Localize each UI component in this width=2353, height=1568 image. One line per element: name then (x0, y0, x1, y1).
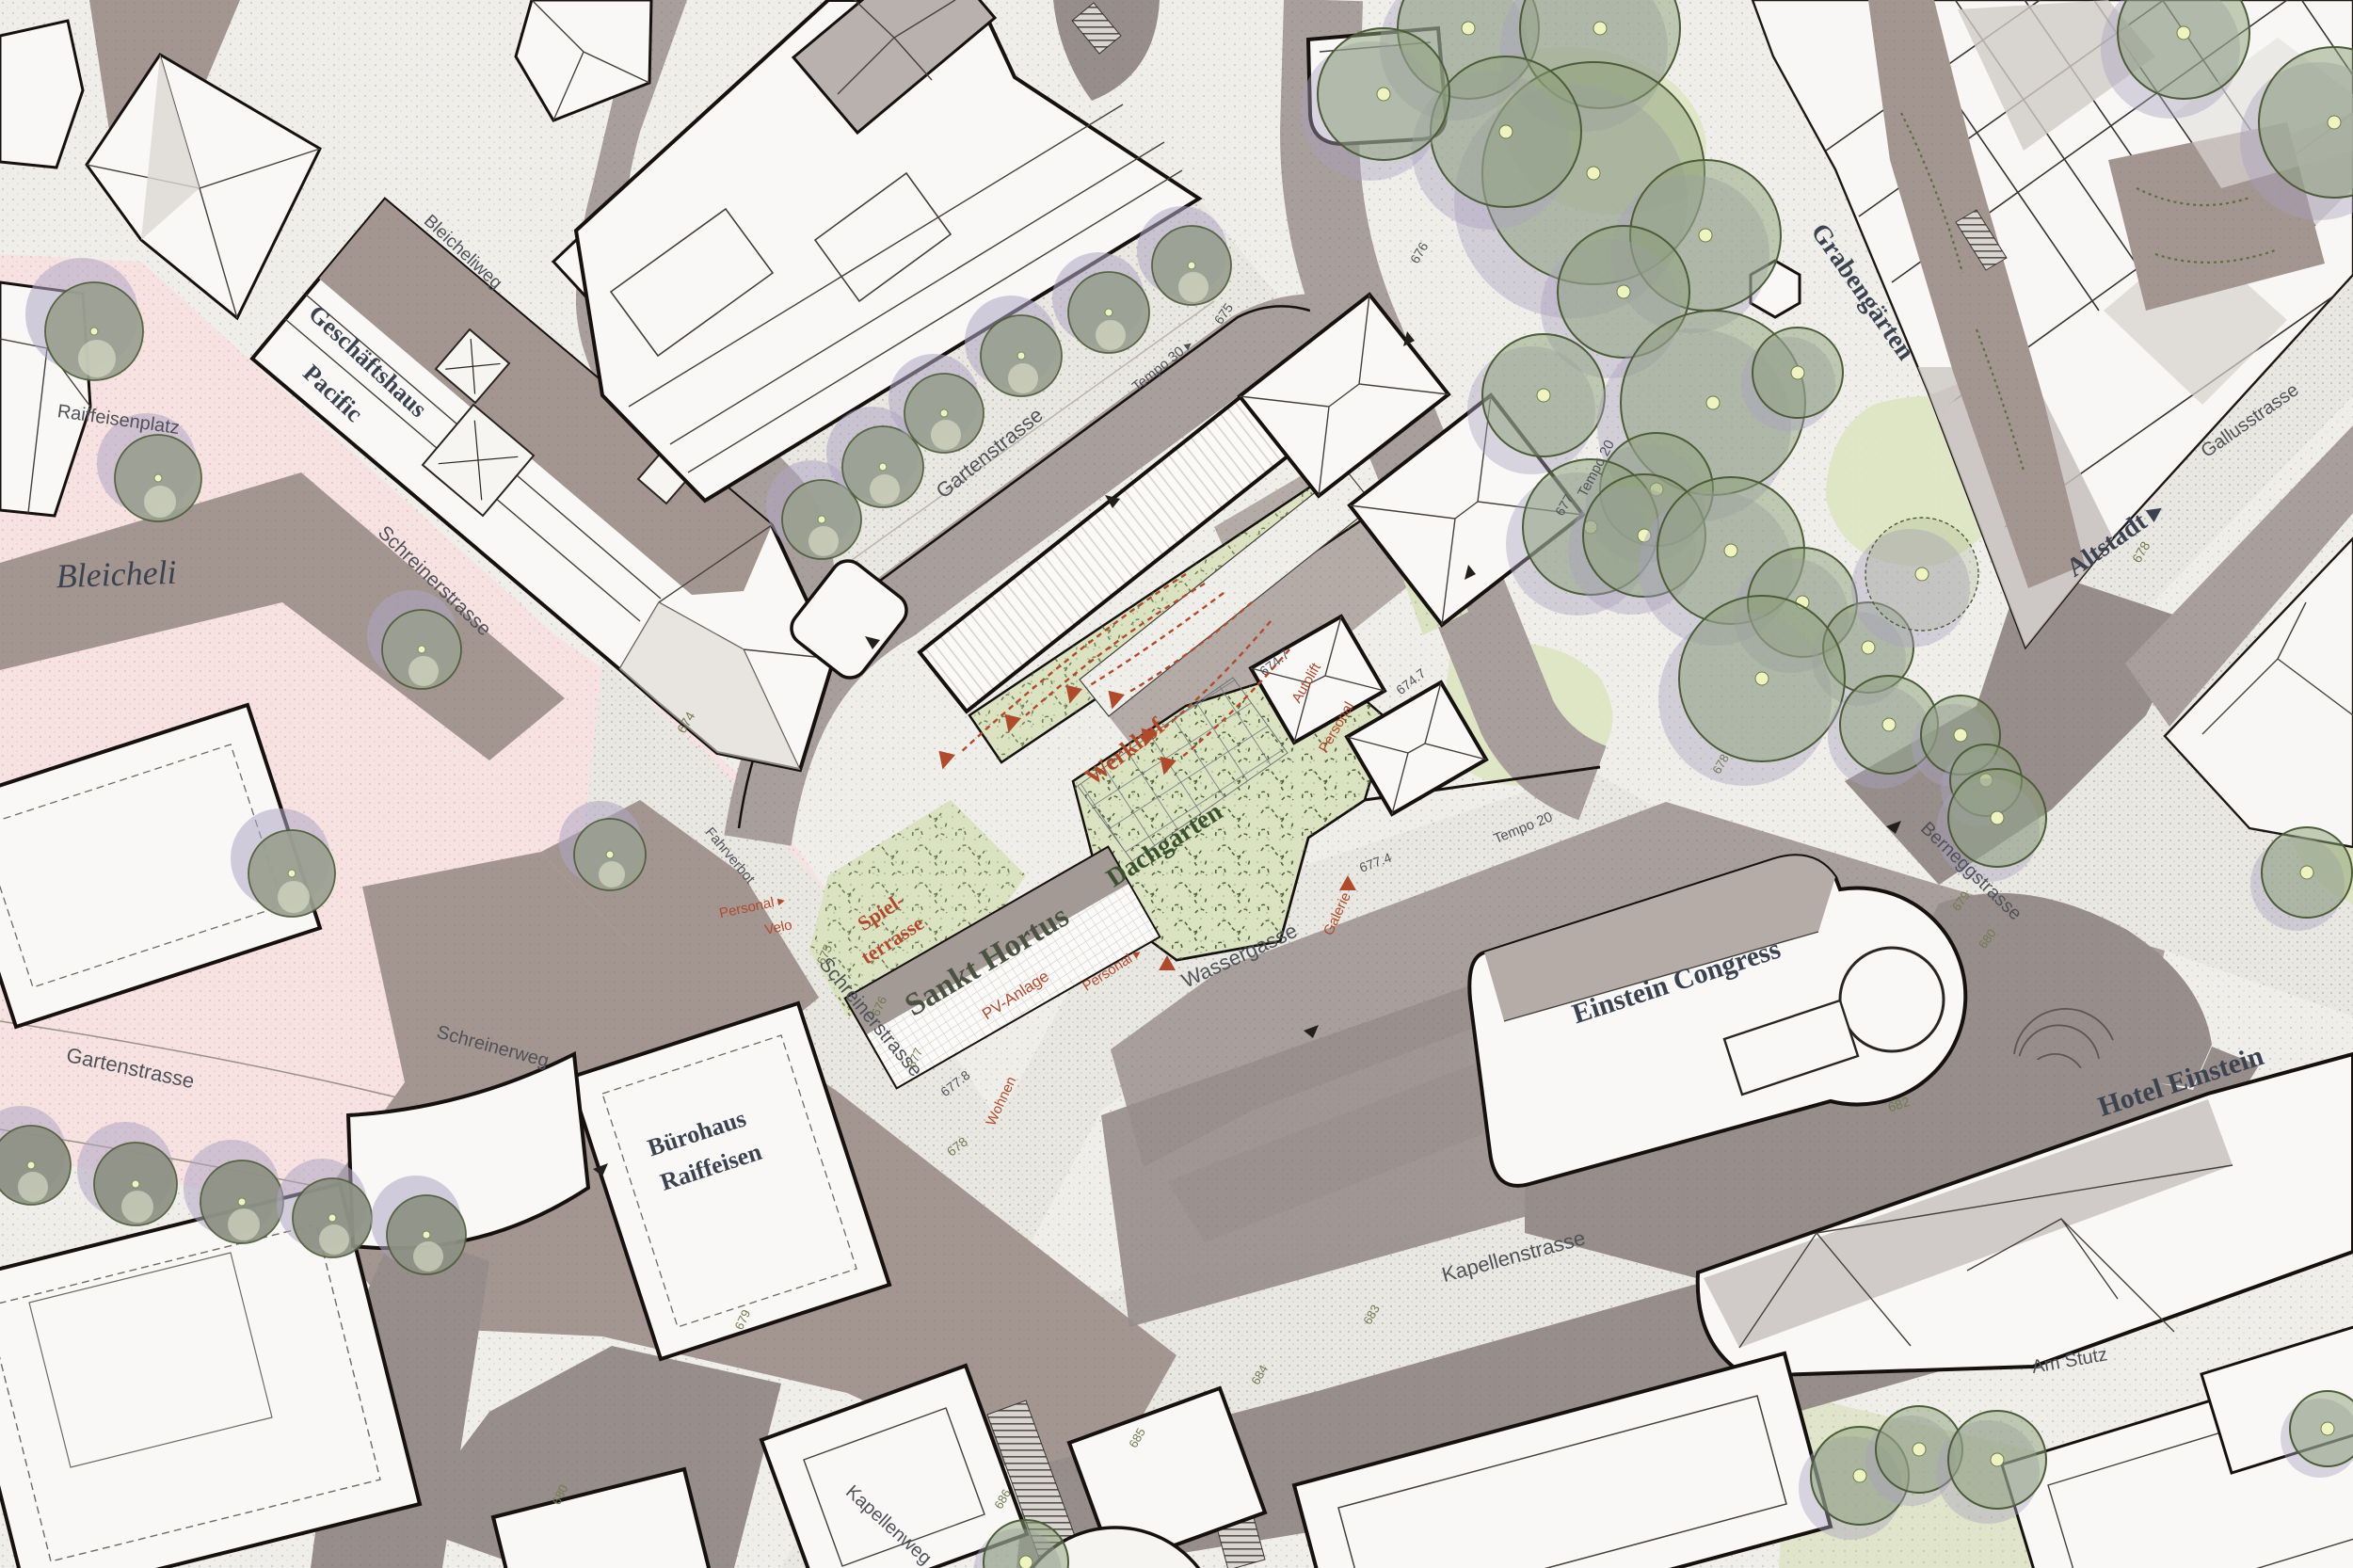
svg-text:Bleicheli: Bleicheli (56, 553, 177, 595)
